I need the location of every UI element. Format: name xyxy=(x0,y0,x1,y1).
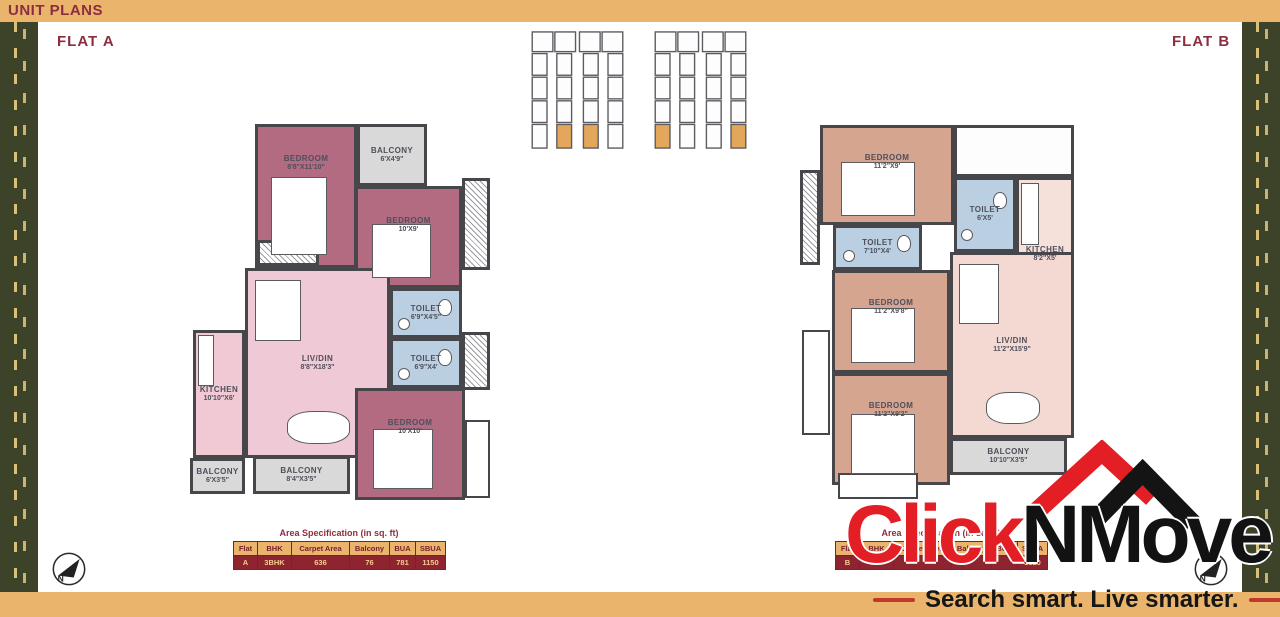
room-duct xyxy=(800,170,820,265)
flat-a-spec-table: Area Specification (in sq. ft) Flat BHK … xyxy=(233,528,445,570)
logo-tagline-row: Search smart. Live smarter. xyxy=(873,586,1280,614)
room-dims-label: 6'9"X4' xyxy=(415,364,438,372)
room-dims-label: 10'10"X6' xyxy=(204,395,235,403)
room-dims-label: 11'2"X9' xyxy=(874,163,901,171)
tagline-dash-right xyxy=(1249,598,1280,602)
spec-value-cell: A xyxy=(234,556,258,570)
keyplan-right xyxy=(648,28,753,152)
room-foyer xyxy=(954,125,1074,177)
room-dims-label: 6'9"X4'5" xyxy=(411,314,441,322)
room-bedroom: BEDROOM11'2"X9' xyxy=(820,125,954,225)
room-dims-label: 8'8"X18'3" xyxy=(300,364,334,372)
page-title: UNIT PLANS xyxy=(8,2,103,19)
room-name-label: BEDROOM xyxy=(284,154,329,164)
left-border-pattern xyxy=(0,22,38,592)
room-dims-label: 10'X9' xyxy=(399,226,419,234)
tagline-dash-left xyxy=(873,598,915,602)
spec-header-cell: Flat xyxy=(234,542,258,556)
room-bedroom: BEDROOM11'2"X9'8" xyxy=(832,270,950,373)
compass-icon-left: N xyxy=(50,550,88,588)
room-name-label: BEDROOM xyxy=(869,298,914,308)
room-name-label: KITCHEN xyxy=(200,385,238,395)
spec-title: Area Specification (in sq. ft) xyxy=(233,528,445,538)
room-balcony: BALCONY6'X3'5" xyxy=(190,458,245,494)
spec-value-cell: 636 xyxy=(292,556,350,570)
flat-b-label: FLAT B xyxy=(1172,33,1230,50)
room-name-label: LIV/DIN xyxy=(302,354,333,364)
room-dims-label: 11'2"X9'8" xyxy=(874,308,908,316)
flat-a-label: FLAT A xyxy=(57,33,115,50)
room-ledge xyxy=(465,420,490,498)
logo-tagline: Search smart. Live smarter. xyxy=(925,586,1239,614)
room-ledge xyxy=(802,330,830,435)
room-name-label: KITCHEN xyxy=(1026,245,1064,255)
svg-text:N: N xyxy=(58,573,64,583)
logo-word-click: Click xyxy=(845,489,1021,580)
room-name-label: BALCONY xyxy=(371,146,413,156)
room-duct xyxy=(462,178,490,270)
spec-value-cell: 76 xyxy=(350,556,390,570)
room-balcony: BALCONY6'X4'9" xyxy=(357,124,427,186)
logo-wordmark: ClickNMove xyxy=(845,494,1270,576)
room-name-label: BEDROOM xyxy=(388,418,433,428)
spec-header-cell: Carpet Area xyxy=(292,542,350,556)
room-name-label: TOILET xyxy=(411,354,442,364)
room-dims-label: 11'2"X9'2" xyxy=(874,411,908,419)
room-toilet: TOILET6'9"X4'5" xyxy=(390,288,462,338)
room-name-label: BEDROOM xyxy=(869,401,914,411)
room-name-label: LIV/DIN xyxy=(996,336,1027,346)
spec-table: Flat BHK Carpet Area Balcony BUA SBUA A … xyxy=(233,541,446,570)
room-toilet: TOILET7'10"X4' xyxy=(833,225,922,270)
room-toilet: TOILET6'X5' xyxy=(954,177,1016,252)
room-duct xyxy=(462,332,490,390)
room-dims-label: 8'4"X3'5" xyxy=(286,476,316,484)
room-name-label: BALCONY xyxy=(196,467,238,477)
room-name-label: BALCONY xyxy=(280,466,322,476)
top-bar xyxy=(0,0,1280,22)
keyplan-left xyxy=(525,28,630,152)
room-dims-label: 8'8"X11'10" xyxy=(287,164,325,172)
room-dims-label: 10'X10' xyxy=(398,428,422,436)
room-toilet: TOILET6'9"X4' xyxy=(390,338,462,388)
room-bedroom: BEDROOM10'X10' xyxy=(355,388,465,500)
room-dims-label: 6'X4'9" xyxy=(381,156,404,164)
room-liv-din: LIV/DIN11'2"X15'9" xyxy=(950,252,1074,438)
room-name-label: TOILET xyxy=(862,238,893,248)
logo-word-nmove: NMove xyxy=(1021,489,1270,580)
room-dims-label: 11'2"X15'9" xyxy=(993,346,1031,354)
clicknmove-logo: ClickNMove Search smart. Live smarter. xyxy=(845,450,1280,615)
room-name-label: TOILET xyxy=(411,304,442,314)
room-name-label: BEDROOM xyxy=(865,153,910,163)
room-dims-label: 6'X3'5" xyxy=(206,477,229,485)
spec-value-cell: 3BHK xyxy=(258,556,292,570)
flat-a-plan: BEDROOM8'8"X11'10"BALCONY6'X4'9"BEDROOM1… xyxy=(185,118,490,503)
room-balcony: BALCONY8'4"X3'5" xyxy=(253,456,350,494)
spec-header-cell: SBUA xyxy=(416,542,446,556)
room-name-label: TOILET xyxy=(970,205,1001,215)
spec-header-cell: BHK xyxy=(258,542,292,556)
room-kitchen: KITCHEN10'10"X6' xyxy=(193,330,245,458)
spec-value-cell: 1150 xyxy=(416,556,446,570)
room-dims-label: 8'2"X5' xyxy=(1034,255,1057,263)
room-dims-label: 7'10"X4' xyxy=(864,248,891,256)
room-dims-label: 6'X5' xyxy=(977,215,993,223)
spec-value-cell: 781 xyxy=(390,556,416,570)
spec-header-cell: Balcony xyxy=(350,542,390,556)
spec-header-cell: BUA xyxy=(390,542,416,556)
room-name-label: BEDROOM xyxy=(386,216,431,226)
